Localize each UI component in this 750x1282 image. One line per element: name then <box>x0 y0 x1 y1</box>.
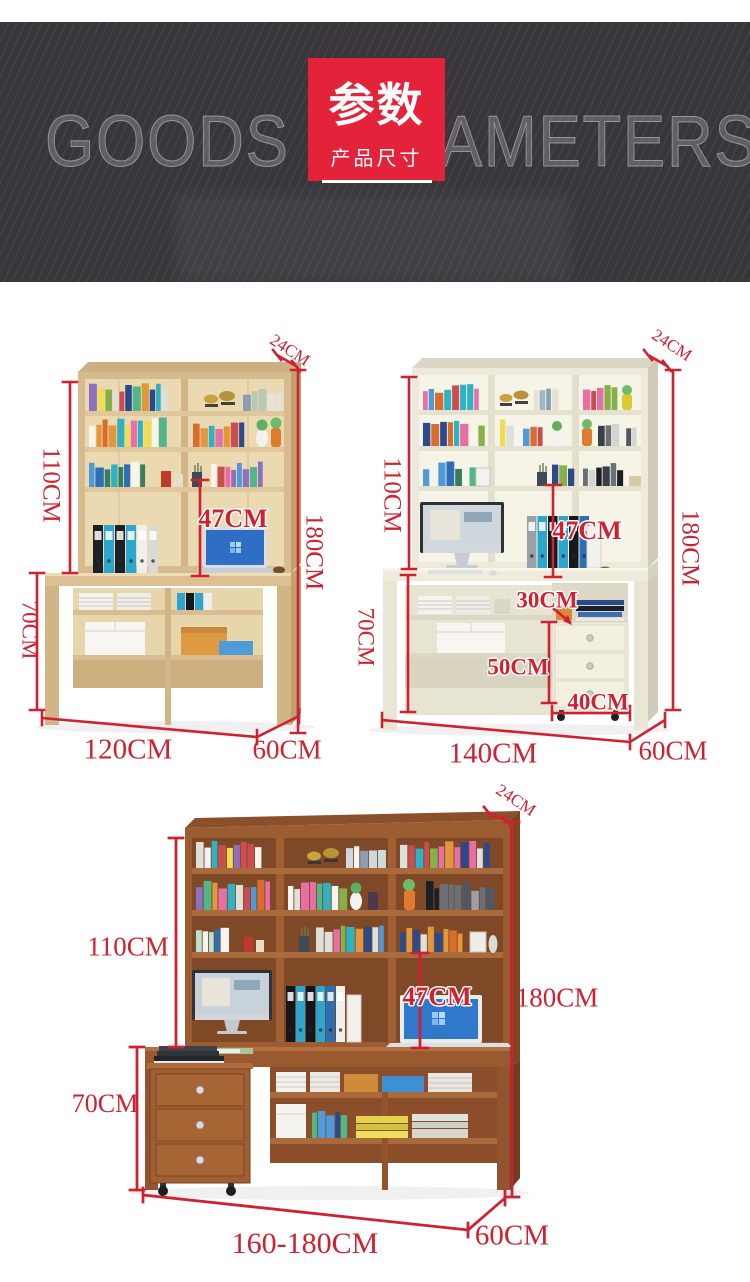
p1-laptop <box>197 527 273 573</box>
badge-subtitle: 产品尺寸 <box>308 142 445 171</box>
bookshelf-books <box>196 880 270 910</box>
p2-dim-desk-height: 70CM <box>355 608 378 667</box>
furniture-illustration-140cm <box>350 330 722 780</box>
p3-dim-width: 160-180CM <box>232 1229 379 1259</box>
p3-bowl <box>363 1034 377 1042</box>
product-figure-140cm: 24CM 110CM 47CM 180CM 70CM 30CM 50CM 40C… <box>350 330 722 780</box>
product-figure-120cm: 24CM 110CM 47CM 180CM 70CM 120CM 60CM <box>15 330 345 780</box>
p2-dim-total-height: 180CM <box>678 510 703 586</box>
p3-mobile-cabinet <box>147 1046 253 1196</box>
p3-frame-figurine <box>470 932 498 953</box>
product-dimensions-infographic: GOODS PARAMETERS 参数 产品尺寸 <box>0 0 750 1282</box>
p1-dim-screen-height: 47CM <box>198 506 267 532</box>
p2-dim-screen-height: 47CM <box>552 518 621 544</box>
p2-dim-hutch-height: 110CM <box>380 457 405 532</box>
p1-dim-hutch-height: 110CM <box>39 447 64 522</box>
params-badge: 参数 产品尺寸 <box>308 58 445 181</box>
p3-dim-total-height: 180CM <box>516 985 599 1012</box>
p2-yellow-vase <box>622 385 632 410</box>
p1-bowl <box>273 567 285 574</box>
p3-white-binder <box>347 995 361 1042</box>
p2-dim-cabinet-gap: 30CM <box>516 589 577 612</box>
p2-photo-frame <box>476 468 490 486</box>
p2-dim-cabinet-width: 40CM <box>567 691 628 714</box>
furniture-illustration-160-180cm <box>60 780 700 1282</box>
badge-underline <box>322 180 432 183</box>
header-banner: GOODS PARAMETERS 参数 产品尺寸 <box>0 22 750 282</box>
p3-dim-hutch-height: 110CM <box>87 934 169 961</box>
p1-dim-width: 120CM <box>84 736 173 765</box>
p3-dim-depth: 60CM <box>475 1222 549 1251</box>
p1-dim-total-height: 180CM <box>302 514 327 590</box>
p2-dim-cabinet-height: 50CM <box>487 656 548 679</box>
badge-title: 参数 <box>308 69 445 135</box>
p1-desk <box>45 565 301 725</box>
p3-dim-desk-height: 70CM <box>72 1091 138 1117</box>
p2-dim-width: 140CM <box>449 740 538 769</box>
p2-dim-depth: 60CM <box>638 738 707 765</box>
furniture-illustration-120cm <box>15 330 345 780</box>
p1-dim-depth: 60CM <box>252 737 321 764</box>
product-figure-160-180cm: 24CM 110CM 47CM 180CM 70CM 160-180CM 60C… <box>60 780 700 1282</box>
bookshelf-books <box>534 389 559 410</box>
p3-dim-screen-height: 47CM <box>402 984 471 1010</box>
p2-box-ornament <box>629 476 641 486</box>
banner-inner-panel <box>175 194 570 282</box>
p1-dim-desk-height: 70CM <box>19 601 42 660</box>
